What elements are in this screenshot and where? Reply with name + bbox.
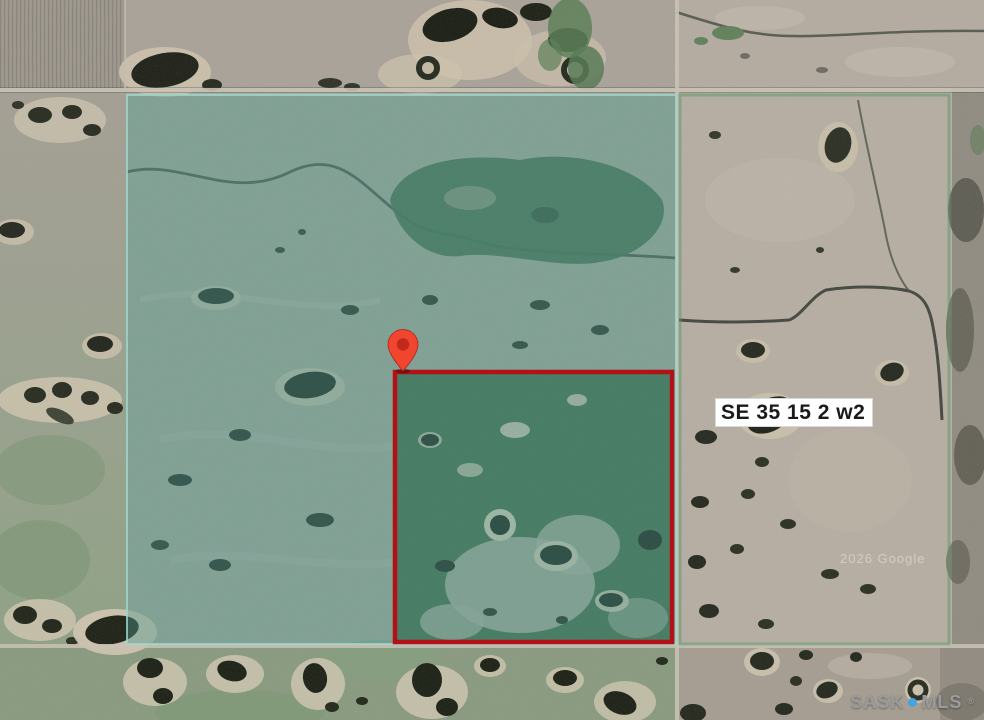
registered-mark: ® [967, 692, 975, 710]
listing-map-image: SE 35 15 2 w2 2026 Google SASK MLS ® [0, 0, 984, 720]
brand-left-text: SASK [850, 692, 904, 713]
satellite-imagery [0, 0, 984, 720]
parcel-label: SE 35 15 2 w2 [715, 398, 873, 427]
brand-right-text: MLS [921, 692, 962, 713]
imagery-credit: 2026 Google [840, 551, 925, 566]
sask-mls-watermark: SASK MLS ® [850, 692, 975, 713]
dot-icon [908, 698, 917, 707]
